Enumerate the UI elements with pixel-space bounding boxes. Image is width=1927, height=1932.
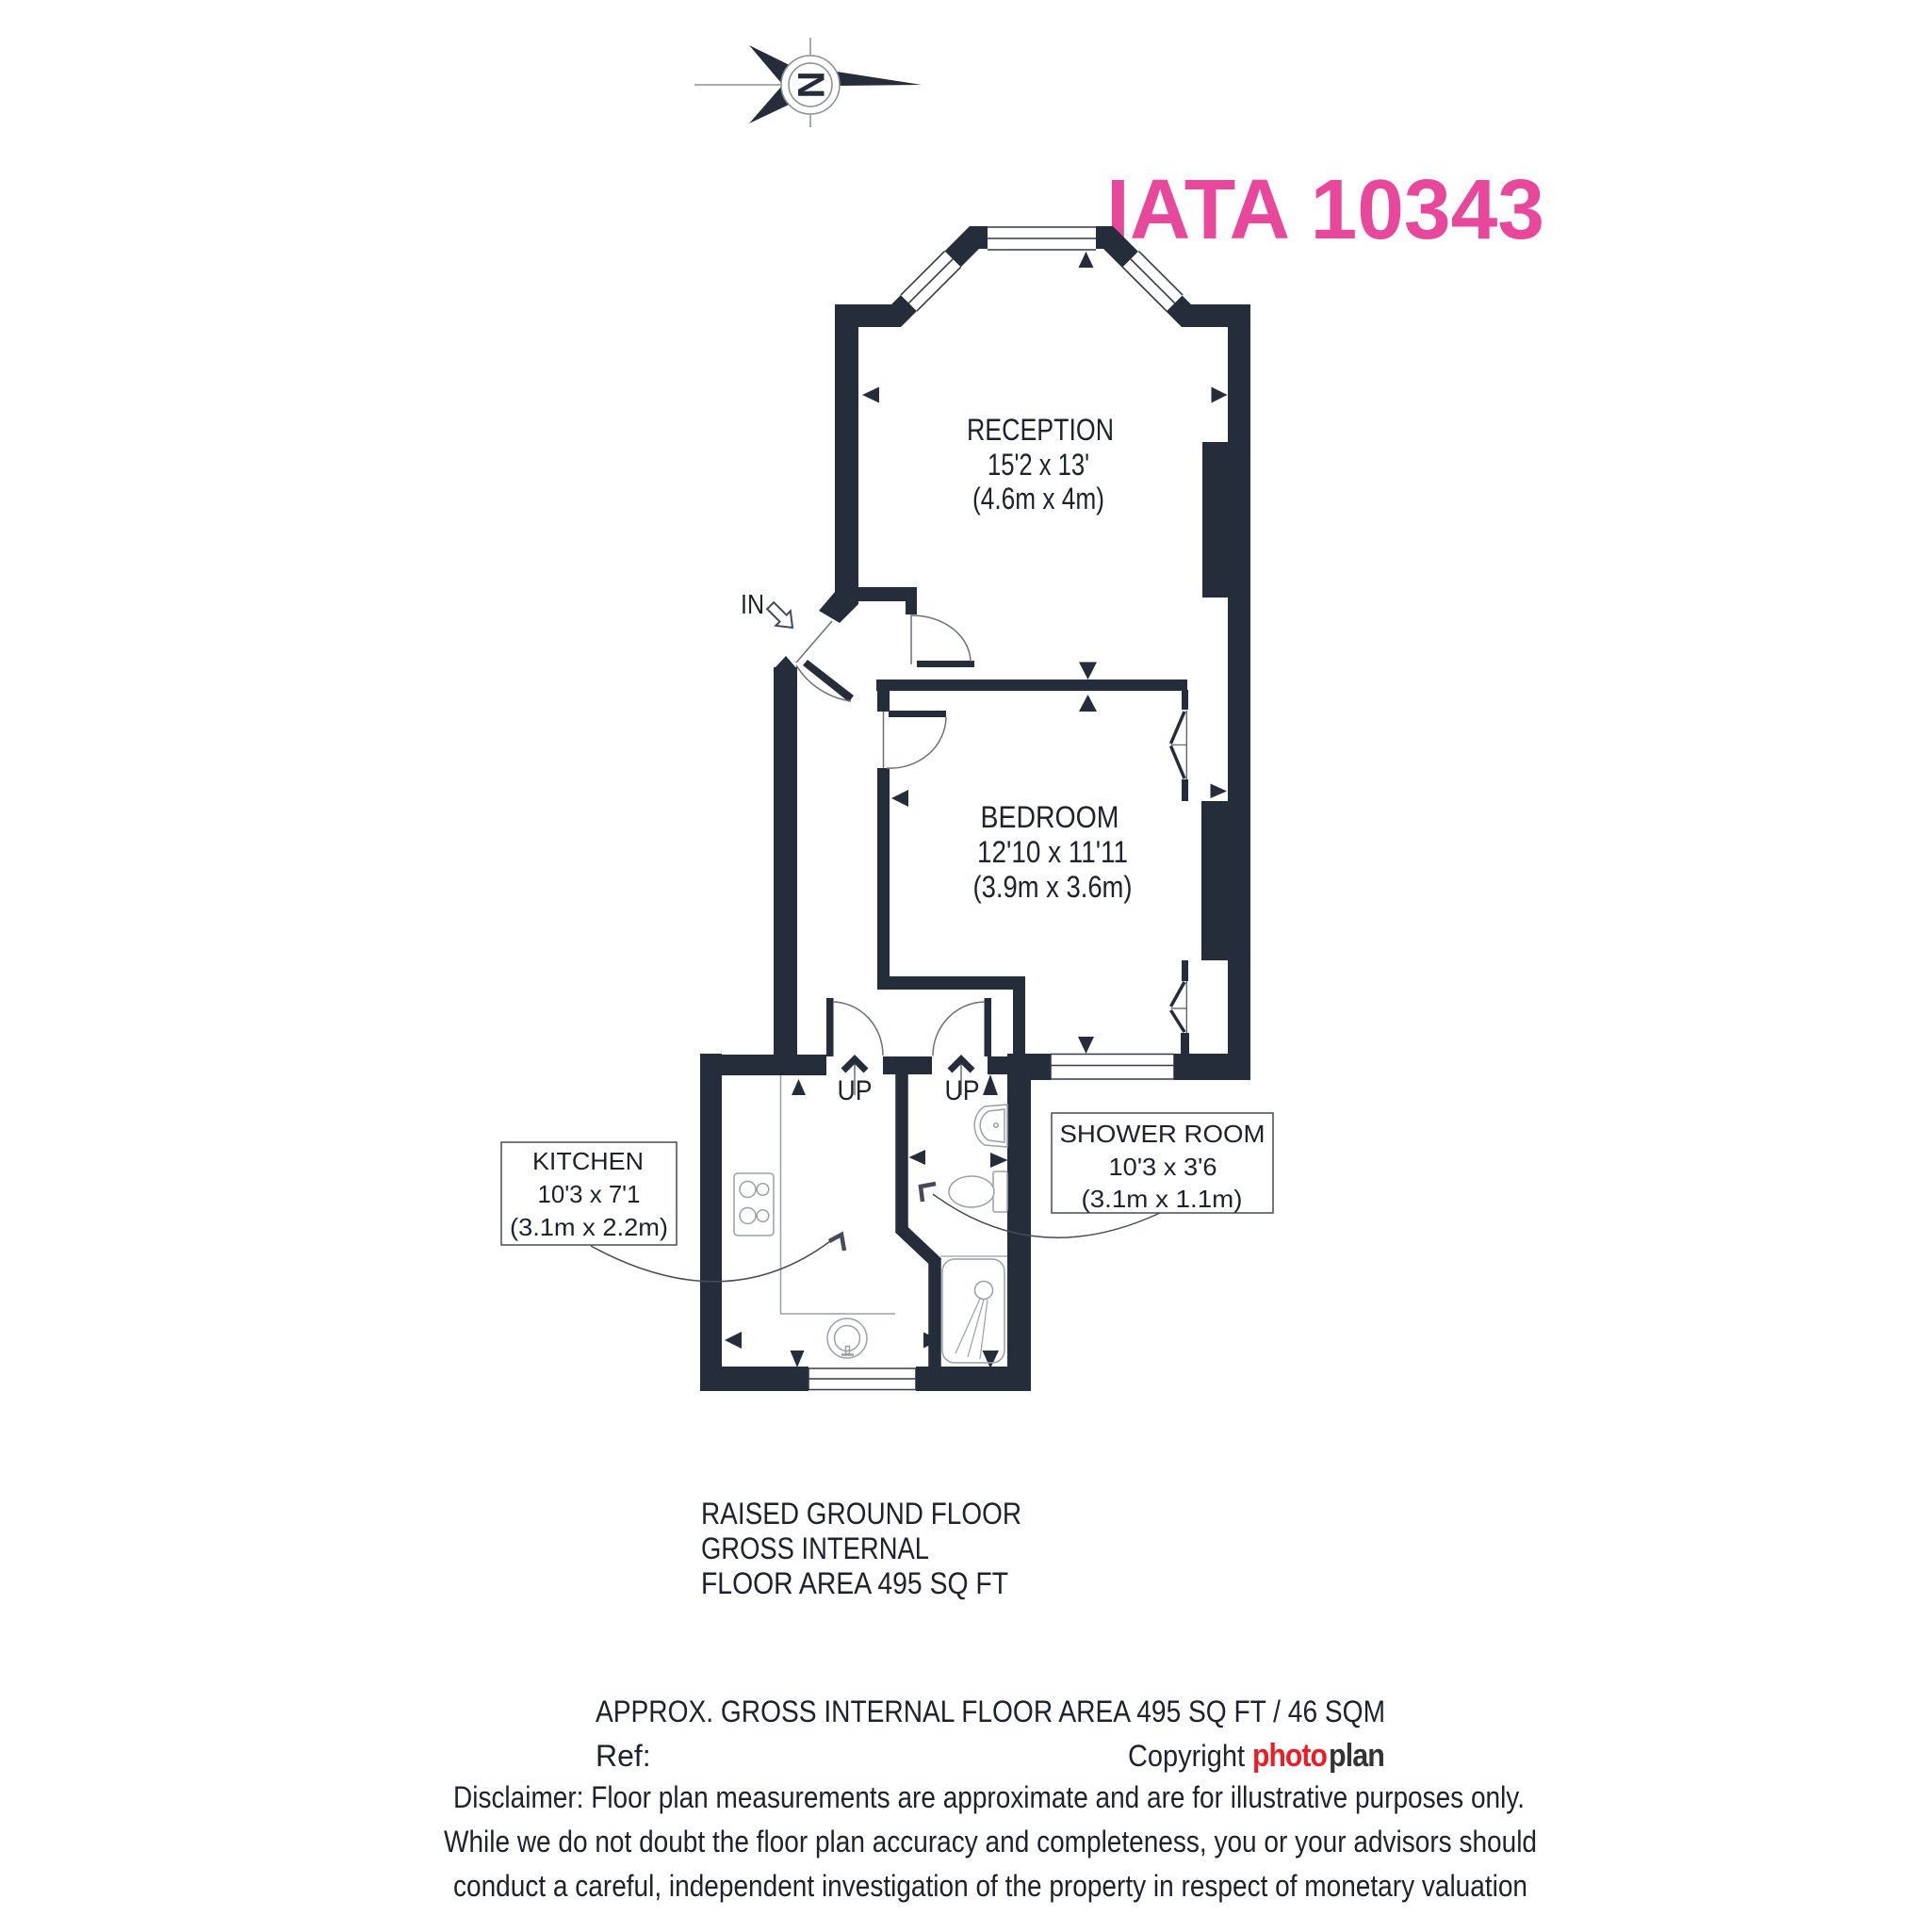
svg-text:N: N bbox=[790, 72, 831, 99]
svg-text:SHOWER ROOM: SHOWER ROOM bbox=[1060, 1120, 1266, 1148]
svg-text:UP: UP bbox=[838, 1075, 873, 1106]
svg-text:plan: plan bbox=[1329, 1738, 1384, 1774]
svg-text:UP: UP bbox=[945, 1075, 980, 1106]
svg-text:(3.1m x 1.1m): (3.1m x 1.1m) bbox=[1082, 1185, 1243, 1213]
svg-text:conduct a careful, independent: conduct a careful, independent investiga… bbox=[453, 1869, 1527, 1903]
svg-text:IATA 10343: IATA 10343 bbox=[1106, 163, 1544, 257]
svg-text:photo: photo bbox=[1252, 1738, 1327, 1774]
svg-text:KITCHEN: KITCHEN bbox=[532, 1147, 644, 1175]
svg-text:While we do not doubt the floo: While we do not doubt the floor plan acc… bbox=[444, 1825, 1537, 1858]
svg-text:(4.6m x 4m): (4.6m x 4m) bbox=[972, 482, 1104, 516]
svg-text:IN: IN bbox=[741, 590, 764, 620]
svg-text:10'3 x 7'1: 10'3 x 7'1 bbox=[538, 1180, 641, 1208]
svg-text:BEDROOM: BEDROOM bbox=[981, 800, 1119, 834]
svg-text:(3.1m x 2.2m): (3.1m x 2.2m) bbox=[510, 1213, 668, 1241]
svg-text:(3.9m x 3.6m): (3.9m x 3.6m) bbox=[973, 870, 1133, 904]
svg-text:APPROX. GROSS INTERNAL FLOOR A: APPROX. GROSS INTERNAL FLOOR AREA 495 SQ… bbox=[596, 1695, 1385, 1728]
svg-text:15'2 x 13': 15'2 x 13' bbox=[988, 448, 1089, 482]
svg-text:RAISED GROUND FLOOR: RAISED GROUND FLOOR bbox=[701, 1497, 1021, 1531]
svg-text:Ref:: Ref: bbox=[596, 1739, 651, 1773]
svg-text:10'3 x 3'6: 10'3 x 3'6 bbox=[1109, 1153, 1217, 1181]
svg-text:GROSS INTERNAL: GROSS INTERNAL bbox=[701, 1531, 929, 1565]
svg-text:FLOOR AREA 495 SQ FT: FLOOR AREA 495 SQ FT bbox=[701, 1566, 1008, 1600]
svg-text:Disclaimer: Floor plan measure: Disclaimer: Floor plan measurements are … bbox=[453, 1780, 1525, 1814]
svg-text:12'10 x 11'11: 12'10 x 11'11 bbox=[977, 835, 1128, 869]
svg-text:Copyright: Copyright bbox=[1128, 1739, 1245, 1773]
svg-text:RECEPTION: RECEPTION bbox=[967, 413, 1114, 447]
